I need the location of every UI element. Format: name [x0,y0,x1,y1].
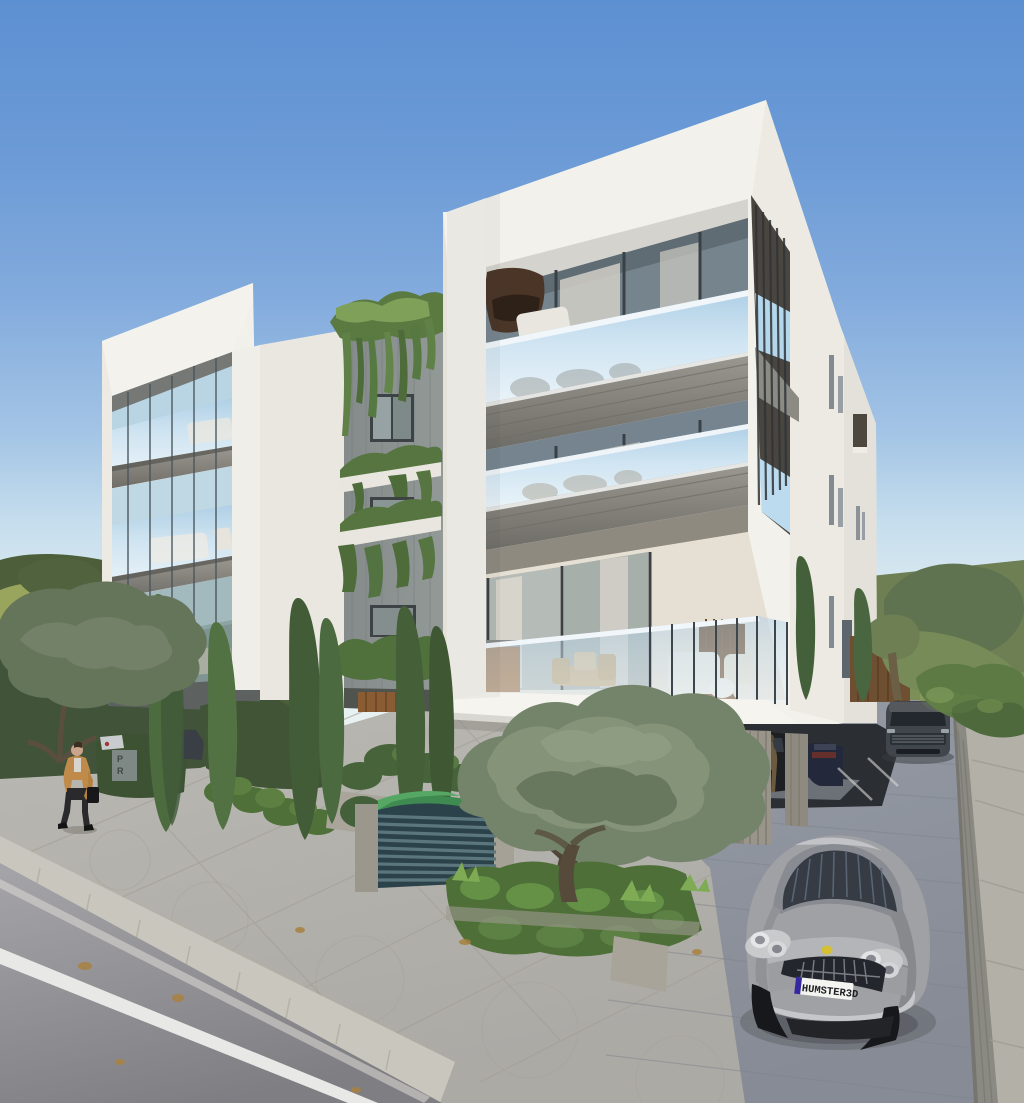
svg-text:R: R [117,766,124,776]
svg-text:P: P [117,754,123,764]
